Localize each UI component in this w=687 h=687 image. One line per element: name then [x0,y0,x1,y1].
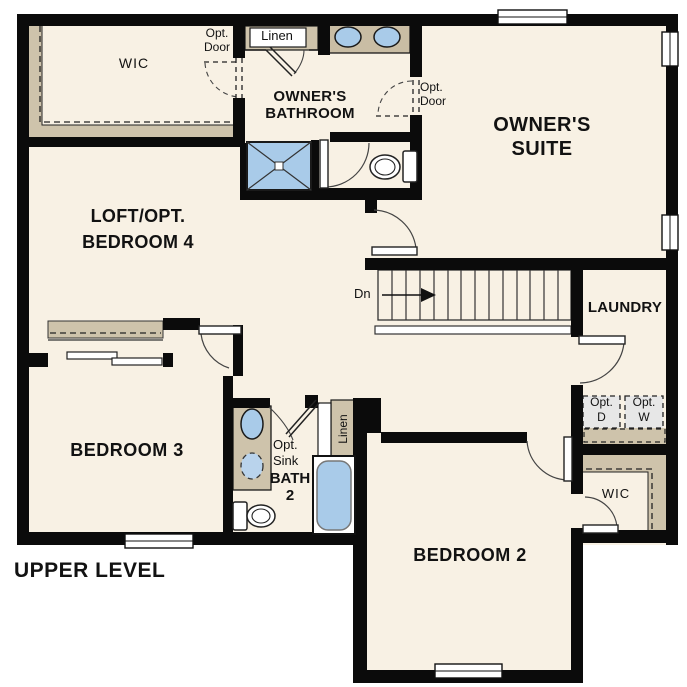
sink-icon [335,27,361,47]
floor-plan-drawing [0,0,687,687]
optional-sink-icon [241,453,263,479]
bathtub-icon [313,456,355,534]
owners-vanity [326,22,410,53]
toilet-icon [233,502,275,530]
sink-icon [374,27,400,47]
laundry-counter [583,428,666,444]
optional-washer-box [625,396,663,428]
linen-door-leaf [318,403,331,456]
window [498,10,567,24]
floor-plan: WIC Opt.Door Linen OWNER'SBATHROOM Opt.D… [0,0,687,687]
optional-dryer-box [583,396,620,428]
bath2-vanity [233,406,271,490]
window [435,664,502,678]
shower-icon [247,142,311,190]
linen-owners-closet [245,26,318,50]
linen-bath2-closet [318,400,355,458]
sink-icon [241,409,263,439]
window [125,534,193,548]
window [662,215,678,250]
window [662,32,678,66]
closet-shelf-bedroom3 [48,321,163,340]
stair-rail [375,326,571,334]
